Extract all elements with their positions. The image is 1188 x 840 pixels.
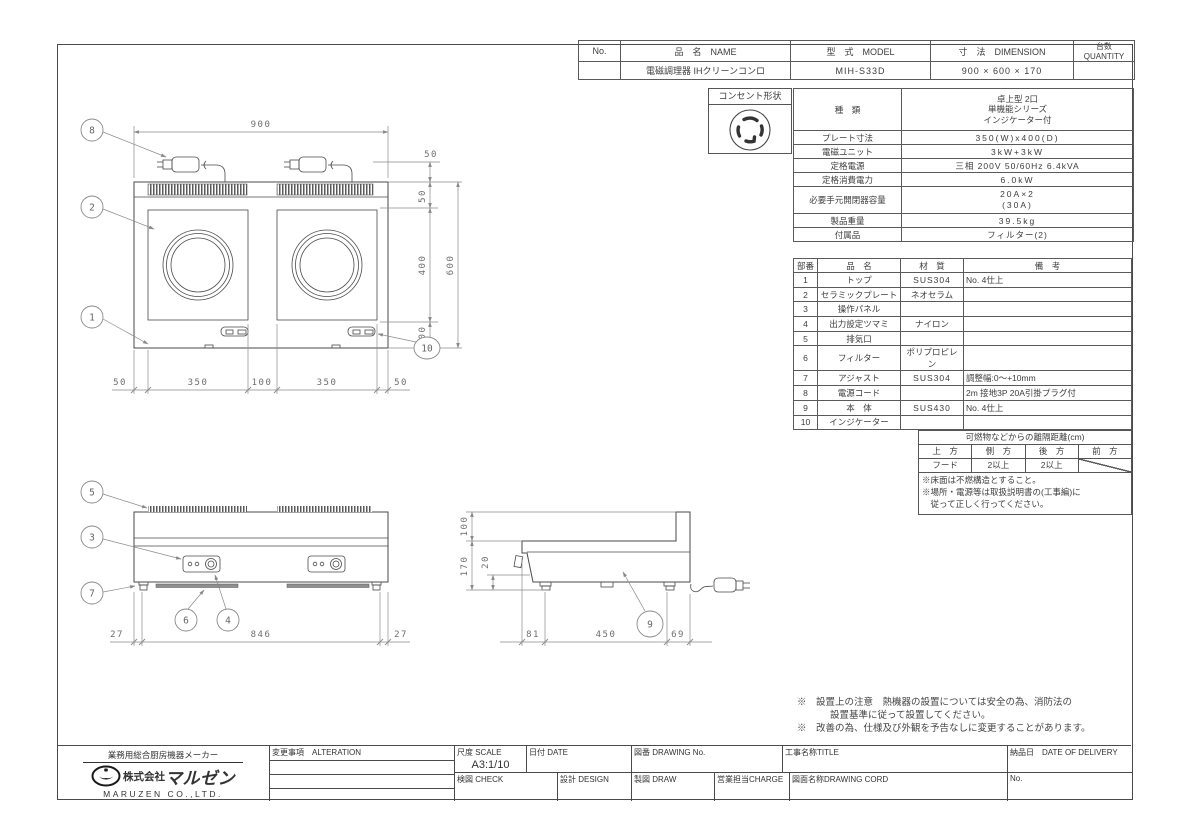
balloon-8: 8 [89,126,95,137]
design-cell: 設計 DESIGN [558,773,632,801]
dim-side-69: 69 [671,630,685,640]
spec-label: 必要手元開閉器容量 [794,187,902,214]
dim-plan-total: 600 [446,255,456,276]
dim-plan-right-50: 50 [418,189,428,203]
clearance-h-top: 上 方 [919,445,972,458]
clearance-h-rear: 後 方 [1026,445,1079,458]
dim-side-100: 100 [460,516,470,537]
dim-side-20: 20 [481,555,491,569]
control-panel-left [183,556,220,572]
maker-block: 業務用総合厨房機器メーカー 株式会社 マルゼン MARUZEN CO.,LTD. [57,746,270,801]
parts-row: 10インジケーター [794,415,1132,430]
spec-label: プレート寸法 [794,131,902,145]
spec-value: 350(W)x400(D) [902,131,1134,145]
balloon-1: 1 [89,313,95,324]
outlet-label: コンセント形状 [708,88,792,105]
spec-label: 定格電源 [794,159,902,173]
note-line: ※ 設置上の注意 熱機器の設置については安全の為、消防法の [797,697,1127,710]
parts-col-remarks: 備 考 [964,259,1132,273]
parts-table: 部番 品 名 材 質 備 考 1トップSUS304No. 4仕上 2セラミックプ… [793,258,1132,430]
alteration-label: 変更事項 ALTERATION [270,746,454,761]
indicator-left [221,327,248,336]
dim-front-27l: 27 [110,630,124,640]
dim-plan-b350r: 350 [317,378,338,388]
clearance-h-front: 前 方 [1079,445,1131,458]
spec-label: 付属品 [794,228,902,242]
drawing-sheet: { "header_table": { "col_no": "No.", "co… [0,0,1188,840]
dim-plan-b350l: 350 [188,378,209,388]
draw-cell: 製図 DRAW [632,773,715,801]
dim-plan-b100: 100 [252,378,273,388]
installation-notes: ※ 設置上の注意 熱機器の設置については安全の為、消防法の 設置基準に従って設置… [797,697,1127,735]
delivery-cell: 納品日 DATE OF DELIVERY [1008,746,1133,773]
plan-view: 900 50 50 400 100 600 50 350 100 [112,120,462,394]
indicator-right [348,327,375,336]
clearance-v-side: 2以上 [972,459,1025,472]
parts-row: 8電源コード2m 接地3P 20A引掛プラグ付 [794,386,1132,401]
clearance-v-top: フード [919,459,972,472]
spec-value: 三相 200V 50/60Hz 6.4kVA [902,159,1134,173]
product-model: MIH-S33D [791,62,931,80]
parts-row: 6フィルターポリプロピレン [794,346,1132,371]
foot-right [373,585,380,590]
product-dimension: 900 × 600 × 170 [931,62,1074,80]
parts-row: 2セラミックプレートネオセラム [794,287,1132,302]
alteration-row [270,789,454,802]
parts-row: 7アジャストSUS304調整幅:0〜+10mm [794,371,1132,386]
maker-prefix: 株式会社 [123,769,165,784]
dim-front-27r: 27 [394,630,408,640]
parts-col-material: 材 質 [901,259,964,273]
balloon-4: 4 [225,616,231,627]
scale-label: 尺度 SCALE [455,746,526,759]
drawing-cord-cell: 図面名称DRAWING CORD [790,773,1008,801]
spec-value: 20A×2 (30A) [902,187,1134,214]
spec-label: 電磁ユニット [794,145,902,159]
note-line: ※ 改善の為、仕様及び外観を予告なしに変更することがあります。 [797,723,1127,736]
title-cell: 工事名称TITLE [783,746,1008,773]
dim-side-450: 450 [596,630,617,640]
alteration-row [270,761,454,775]
balloon-7: 7 [89,589,95,600]
side-foot-rear [666,586,674,590]
product-name: 電磁調理器 IHクリーンコンロ [621,62,791,80]
header-col-quantity: 台数 QUANTITY [1074,41,1135,62]
drawing-no-cell: 図番 DRAWING No. [632,746,783,773]
dim-plan-right-400: 400 [418,255,428,276]
outlet-shape-box: コンセント形状 [708,88,792,154]
header-col-name: 品 名 NAME [621,41,791,62]
balloon-6: 6 [183,616,189,627]
dim-plan-b50l: 50 [113,378,127,388]
spec-value: 6.0kW [902,173,1134,187]
title-block: 業務用総合厨房機器メーカー 株式会社 マルゼン MARUZEN CO.,LTD.… [57,745,1131,801]
clearance-v-rear: 2以上 [1026,459,1079,472]
filter-right [287,584,369,588]
parts-col-no: 部番 [794,259,818,273]
header-col-model: 型 式 MODEL [791,41,931,62]
maker-name: マルゼン [165,764,235,789]
spec-value: 39.5kg [902,214,1134,228]
dim-plan-cord: 50 [424,150,438,160]
dim-side-81: 81 [526,630,540,640]
clearance-note: 従って正しく行ってください。 [922,499,1128,511]
balloon-10: 10 [421,344,433,355]
side-foot-front [542,586,550,590]
parts-row: 1トップSUS304No. 4仕上 [794,273,1132,288]
vent-strip-right [277,184,373,195]
spec-label: 種 類 [794,89,902,131]
control-panel-right [308,556,345,572]
parts-row: 3操作パネル [794,302,1132,317]
balloon-9: 9 [647,620,653,631]
clearance-v-front [1079,459,1131,472]
side-view: 100 170 20 81 450 69 [460,512,750,646]
vent-strip-left [148,184,247,195]
clearance-note: ※場所・電源等は取扱説明書の(工事編)に [922,487,1128,499]
parts-row: 5排気口 [794,331,1132,346]
spec-value: 卓上型 2口 単機能シリーズ インジケーター付 [902,89,1134,131]
spec-label: 製品重量 [794,214,902,228]
clearance-note: ※床面は不燃構造とすること。 [922,475,1128,487]
spec-table: 種 類卓上型 2口 単機能シリーズ インジケーター付 プレート寸法350(W)x… [793,88,1134,242]
balloon-3: 3 [89,533,95,544]
spec-label: 定格消費電力 [794,173,902,187]
product-no [579,62,621,80]
dim-plan-b50r: 50 [394,378,408,388]
parts-row: 9本 体SUS430No. 4仕上 [794,400,1132,415]
maker-en: MARUZEN CO.,LTD. [57,789,269,799]
delivery-no-cell: No. [1008,773,1133,801]
scale-value: A3:1/10 [455,759,526,771]
dim-side-170: 170 [460,556,470,577]
clearance-table: 可燃物などからの離隔距離(cm) 上 方 側 方 後 方 前 方 フード 2以上… [918,430,1132,515]
side-knob [514,556,523,568]
header-col-dimension: 寸 法 DIMENSION [931,41,1074,62]
parts-col-name: 品 名 [818,259,901,273]
scale-cell: 尺度 SCALE A3:1/10 [455,746,527,773]
date-cell: 日付 DATE [527,746,632,773]
power-cord-left [157,157,225,182]
dim-plan-width: 900 [251,120,272,130]
spec-value: 3kW+3kW [902,145,1134,159]
locking-plug-icon [709,105,791,153]
check-cell: 検図 CHECK [455,773,558,801]
foot-left [140,585,147,590]
spec-value: フィルター(2) [902,228,1134,242]
maker-tagline: 業務用総合厨房機器メーカー [83,749,243,763]
clearance-title: 可燃物などからの離隔距離(cm) [919,431,1131,445]
header-table: No. 品 名 NAME 型 式 MODEL 寸 法 DIMENSION 台数 … [578,40,1135,80]
note-line: 設置基準に従って設置してください。 [797,710,1127,723]
header-col-no: No. [579,41,621,62]
alteration-block: 変更事項 ALTERATION [270,746,455,801]
balloon-5: 5 [89,488,95,499]
product-quantity [1074,62,1135,80]
power-cord-right [284,157,352,182]
plan-body [134,182,388,348]
parts-row: 4出力設定ツマミナイロン [794,317,1132,332]
front-vent-right [277,506,372,512]
alteration-row [270,775,454,789]
front-vent-left [148,506,247,512]
dim-front-846: 846 [251,630,272,640]
front-view: 27 846 27 [110,506,410,646]
balloon-2: 2 [89,203,95,214]
filter-left [156,584,238,588]
side-power-cord [691,578,750,592]
charge-cell: 営業担当CHARGE [715,773,790,801]
clearance-h-side: 側 方 [972,445,1025,458]
maruzen-logo-icon [91,765,121,787]
